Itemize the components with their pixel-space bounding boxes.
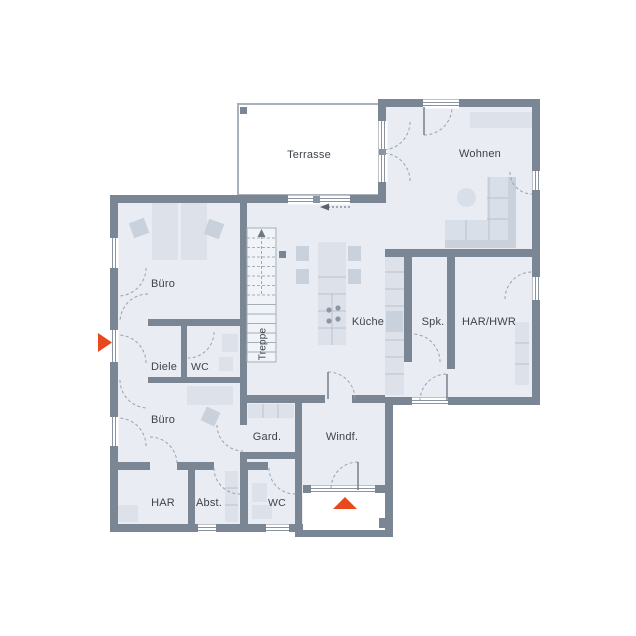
room-label-gard: Gard. xyxy=(253,431,282,443)
room-label-har: HAR xyxy=(151,497,175,509)
room-label-wc-1: WC xyxy=(191,361,209,373)
entrance-arrow-south xyxy=(333,497,357,509)
room-label-buero-1: Büro xyxy=(151,278,175,290)
room-label-terrasse: Terrasse xyxy=(287,149,331,161)
hob-burners xyxy=(326,305,340,323)
room-label-wc-2: WC xyxy=(268,497,286,509)
room-label-diele: Diele xyxy=(151,361,177,373)
slide-arrow xyxy=(320,204,352,211)
room-label-wohnen: Wohnen xyxy=(459,148,501,160)
room-label-windf: Windf. xyxy=(326,431,358,443)
room-label-abst: Abst. xyxy=(196,497,222,509)
plan-annotations xyxy=(0,0,636,636)
room-label-buero-2: Büro xyxy=(151,414,175,426)
room-label-kueche: Küche xyxy=(352,316,384,328)
room-label-spk: Spk. xyxy=(422,316,445,328)
room-label-har-hwr: HAR/HWR xyxy=(462,316,516,328)
kitchen-island-details xyxy=(318,277,346,345)
floor-plan: Terrasse Wohnen Büro Diele WC Büro Küche… xyxy=(0,0,636,636)
room-label-treppe: Treppe xyxy=(258,328,269,361)
